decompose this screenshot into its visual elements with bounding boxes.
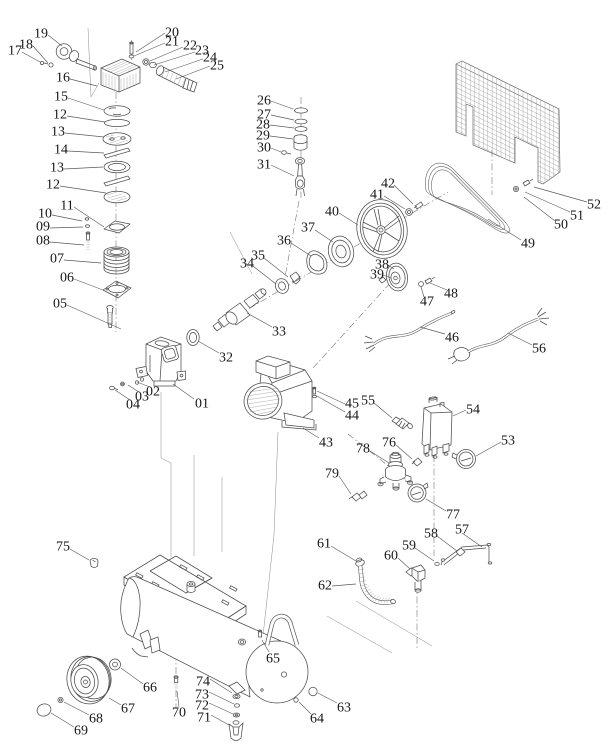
svg-text:62: 62 bbox=[318, 579, 332, 594]
svg-text:06: 06 bbox=[60, 271, 74, 286]
svg-text:09: 09 bbox=[36, 220, 50, 235]
svg-text:32: 32 bbox=[219, 351, 233, 366]
svg-text:18: 18 bbox=[19, 38, 33, 53]
svg-text:13: 13 bbox=[50, 161, 64, 176]
svg-text:13: 13 bbox=[51, 125, 65, 140]
svg-text:78: 78 bbox=[356, 442, 370, 457]
svg-text:68: 68 bbox=[89, 712, 103, 727]
svg-text:52: 52 bbox=[587, 198, 601, 213]
svg-text:26: 26 bbox=[257, 94, 271, 109]
svg-text:36: 36 bbox=[277, 234, 291, 249]
svg-text:39: 39 bbox=[370, 268, 384, 283]
svg-text:14: 14 bbox=[54, 143, 68, 158]
svg-text:37: 37 bbox=[301, 221, 315, 236]
svg-text:42: 42 bbox=[381, 177, 395, 192]
svg-text:63: 63 bbox=[337, 701, 351, 716]
svg-text:10: 10 bbox=[38, 207, 52, 222]
svg-text:12: 12 bbox=[53, 108, 67, 123]
svg-text:16: 16 bbox=[56, 71, 70, 86]
svg-text:77: 77 bbox=[446, 508, 460, 523]
svg-text:79: 79 bbox=[325, 467, 339, 482]
svg-text:69: 69 bbox=[74, 724, 88, 739]
svg-text:55: 55 bbox=[361, 394, 375, 409]
svg-text:51: 51 bbox=[570, 209, 584, 224]
svg-text:47: 47 bbox=[420, 295, 434, 310]
svg-text:58: 58 bbox=[424, 527, 438, 542]
svg-text:40: 40 bbox=[325, 205, 339, 220]
svg-text:31: 31 bbox=[257, 158, 271, 173]
svg-text:08: 08 bbox=[36, 234, 50, 249]
svg-text:53: 53 bbox=[501, 434, 515, 449]
svg-text:48: 48 bbox=[444, 287, 458, 302]
svg-text:61: 61 bbox=[317, 537, 331, 552]
svg-text:30: 30 bbox=[257, 141, 271, 156]
svg-text:67: 67 bbox=[121, 702, 135, 717]
svg-text:21: 21 bbox=[165, 35, 179, 50]
svg-text:65: 65 bbox=[266, 652, 280, 667]
svg-text:04: 04 bbox=[126, 398, 140, 413]
svg-text:50: 50 bbox=[554, 218, 568, 233]
svg-text:73: 73 bbox=[195, 688, 209, 703]
svg-text:43: 43 bbox=[319, 436, 333, 451]
svg-text:54: 54 bbox=[466, 403, 480, 418]
svg-text:49: 49 bbox=[521, 237, 535, 252]
svg-text:15: 15 bbox=[54, 90, 68, 105]
svg-text:70: 70 bbox=[172, 706, 186, 721]
svg-text:11: 11 bbox=[60, 199, 73, 214]
svg-text:74: 74 bbox=[196, 675, 210, 690]
svg-text:25: 25 bbox=[210, 59, 224, 74]
svg-text:12: 12 bbox=[46, 178, 60, 193]
svg-text:75: 75 bbox=[56, 540, 70, 555]
svg-text:07: 07 bbox=[50, 252, 64, 267]
svg-text:05: 05 bbox=[53, 297, 67, 312]
svg-text:35: 35 bbox=[251, 249, 265, 264]
svg-text:45: 45 bbox=[345, 397, 359, 412]
svg-text:56: 56 bbox=[532, 342, 546, 357]
svg-text:46: 46 bbox=[445, 331, 459, 346]
svg-text:57: 57 bbox=[455, 523, 469, 538]
svg-text:64: 64 bbox=[310, 712, 324, 727]
svg-text:59: 59 bbox=[402, 539, 416, 554]
svg-text:60: 60 bbox=[384, 549, 398, 564]
svg-text:33: 33 bbox=[272, 325, 286, 340]
svg-text:66: 66 bbox=[143, 681, 157, 696]
svg-text:19: 19 bbox=[34, 27, 48, 42]
svg-text:76: 76 bbox=[382, 436, 396, 451]
svg-text:01: 01 bbox=[195, 397, 209, 412]
